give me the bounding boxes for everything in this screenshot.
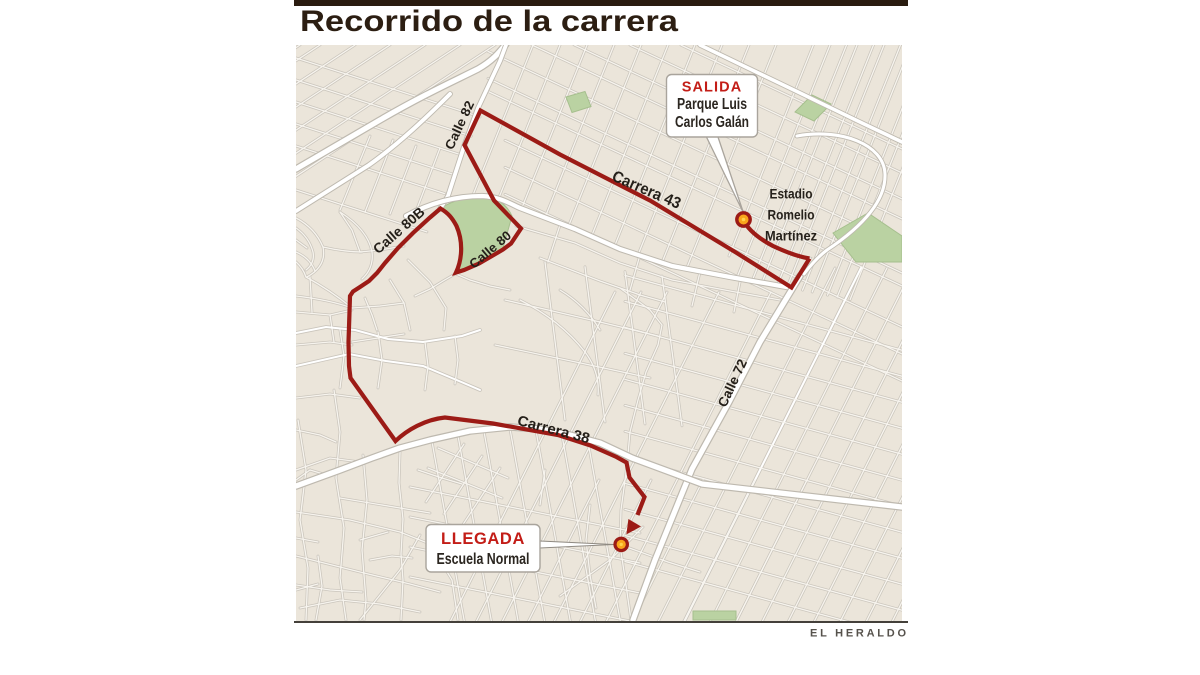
svg-text:Carlos Galán: Carlos Galán <box>675 114 749 131</box>
svg-text:Martínez: Martínez <box>765 228 817 244</box>
svg-text:Estadio: Estadio <box>770 186 813 202</box>
svg-text:Recorrido de la carrera: Recorrido de la carrera <box>300 5 678 38</box>
svg-text:Escuela Normal: Escuela Normal <box>437 551 530 568</box>
svg-text:EL HERALDO: EL HERALDO <box>810 628 906 640</box>
svg-text:SALIDA: SALIDA <box>682 80 743 96</box>
svg-text:Parque Luis: Parque Luis <box>677 96 747 113</box>
svg-text:LLEGADA: LLEGADA <box>441 530 525 548</box>
svg-text:Romelio: Romelio <box>768 207 815 223</box>
